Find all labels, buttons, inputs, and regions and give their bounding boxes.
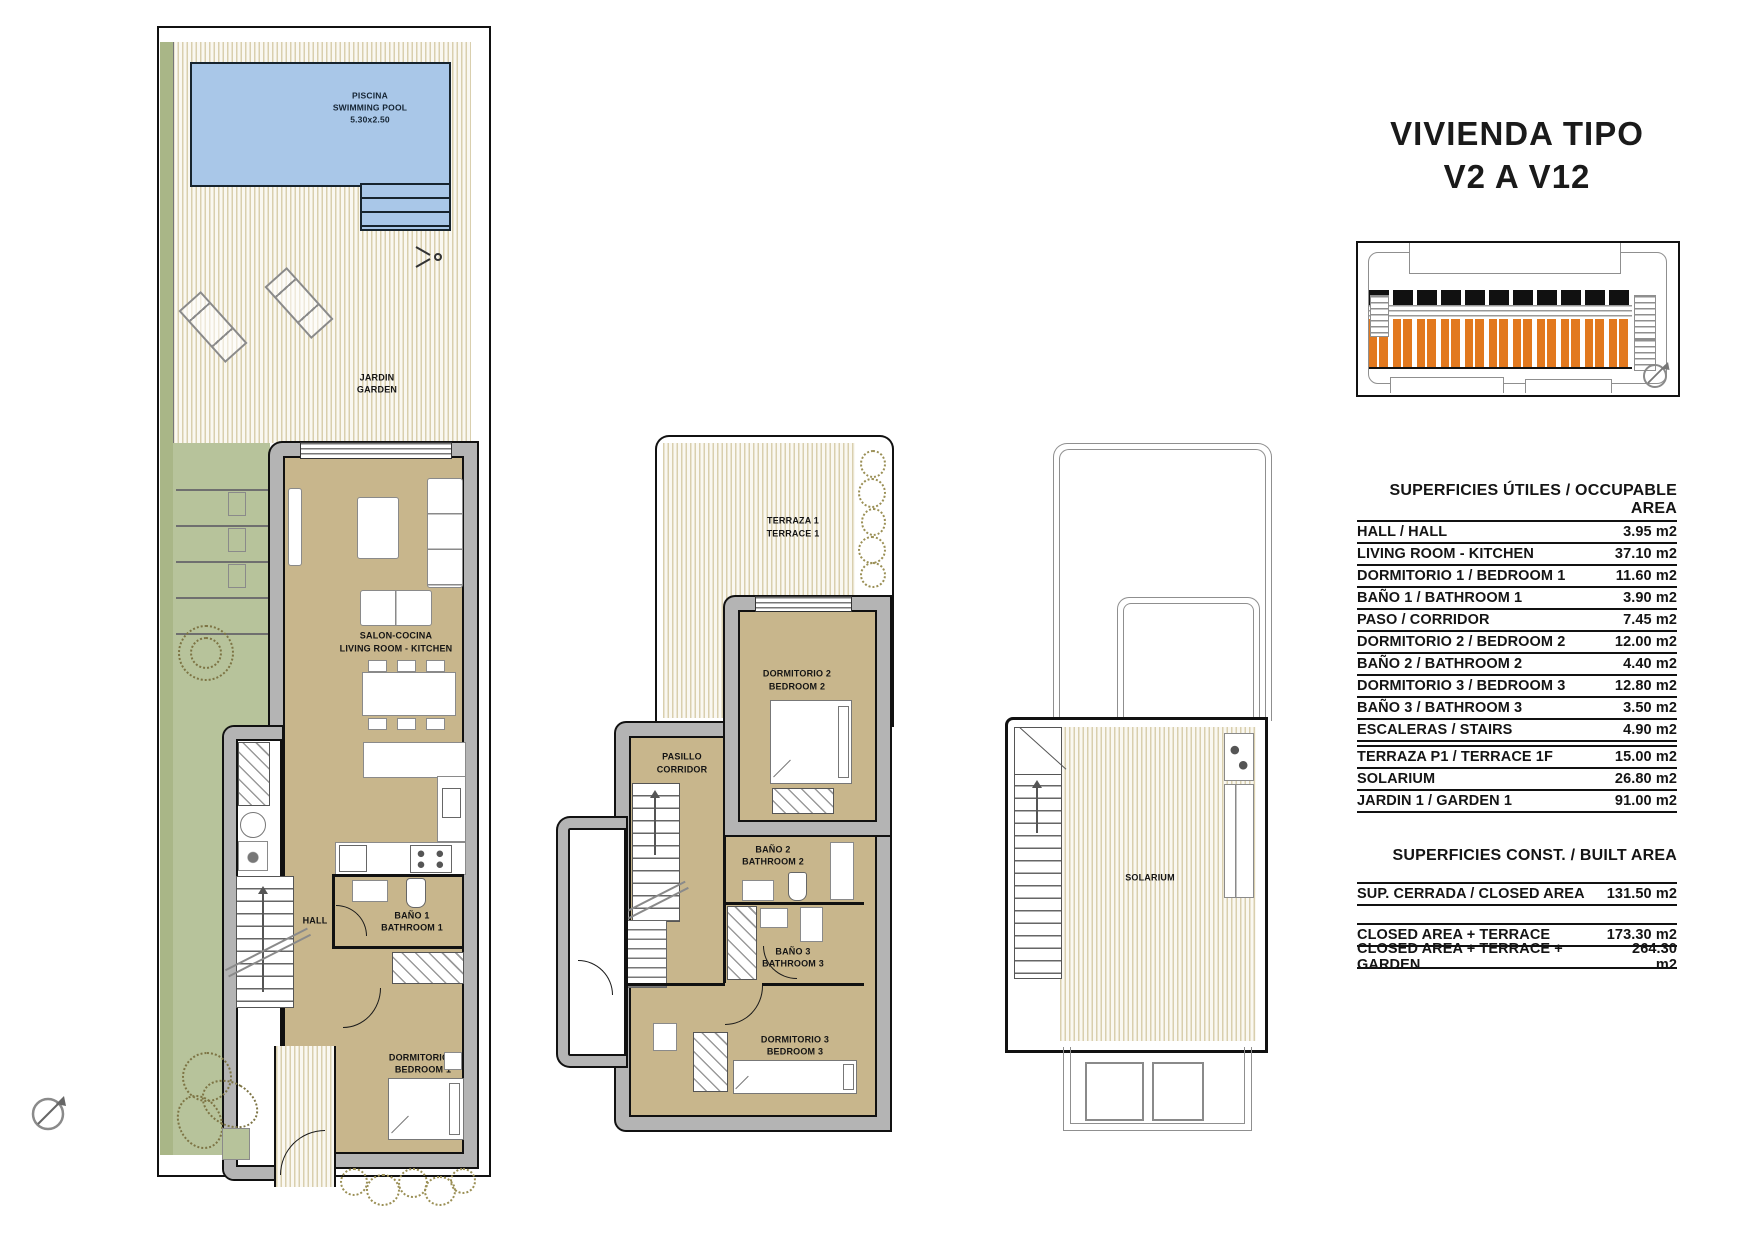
bed2-wardrobe [772,788,834,814]
occupable-area-table: HALL / HALL3.95 m2 LIVING ROOM - KITCHEN… [1357,520,1677,742]
bed2-label-1: DORMITORIO 2 [763,669,831,680]
built-area-table: SUP. CERRADA / CLOSED AREA131.50 m2 [1357,882,1677,906]
stove [410,845,452,873]
bath2-label-1: BAÑO 2 [755,845,790,856]
bed-3 [733,1060,857,1094]
pool-label-1: PISCINA [352,91,388,102]
bath2-label-2: BATHROOM 2 [742,857,804,868]
fridge [339,845,367,872]
shower-icon [412,243,446,275]
bath2-shower [830,842,854,900]
tv-unit [288,488,302,566]
pergola-post [228,492,246,516]
terrace-label-1: TERRAZA 1 [767,516,819,527]
bed3-label-2: BEDROOM 3 [767,1047,823,1058]
stairs-solarium [1014,773,1062,979]
roof-outline2-inner [1123,603,1254,721]
units-highlight-band [1369,319,1632,369]
wall-corridor-baths [723,835,726,983]
pergola-dashes [176,455,268,640]
pergola-post [228,528,246,552]
dining-chair [426,660,445,672]
title-line-2: V2 A V12 [1357,155,1677,198]
pool-label-3: 5.30x2.50 [350,115,390,126]
bed3-label-1: DORMITORIO 3 [761,1035,829,1046]
site-location-plan [1356,241,1680,397]
dining-chair [397,718,416,730]
table-row: SOLARIUM26.80 m2 [1357,769,1677,791]
compass-icon [1641,356,1673,390]
table-row: DORMITORIO 2 / BEDROOM 212.00 m2 [1357,632,1677,654]
shrub [366,1174,400,1206]
terrace-shrub [860,450,886,478]
hall-label: HALL [303,916,328,927]
units-terrace-band [1369,305,1632,319]
dining-chair [397,660,416,672]
bath3-tub [800,907,823,942]
wall-hall-bath [332,874,335,948]
table-row: BAÑO 3 / BATHROOM 33.50 m2 [1357,698,1677,720]
bath2-sink [742,880,774,901]
site-lower-court [1525,379,1612,393]
living-label-2: LIVING ROOM - KITCHEN [340,644,453,655]
dining-chair [426,718,445,730]
pool-steps [360,183,451,231]
units-wall-band [1369,290,1632,305]
bath2-toilet [788,872,807,901]
table-row: ESCALERAS / STAIRS4.90 m2 [1357,720,1677,742]
kitchen-sink [442,788,461,818]
floorplan-sheet: PISCINA SWIMMING POOL 5.30x2.50 JARDIN G… [0,0,1755,1241]
bath3-sink [760,908,788,928]
bath1-label-2: BATHROOM 1 [381,923,443,934]
garden-label-1: JARDIN [360,373,395,384]
dining-table [362,672,456,716]
solarium-counter [1224,784,1254,898]
wall-bed3-top-left [628,983,725,986]
table-row: BAÑO 2 / BATHROOM 24.40 m2 [1357,654,1677,676]
table-row: DORMITORIO 3 / BEDROOM 312.80 m2 [1357,676,1677,698]
table-row: LIVING ROOM - KITCHEN37.10 m2 [1357,544,1677,566]
stairs-arrow-head [258,886,268,894]
terrace-shrub [860,562,886,588]
solarium-sink-unit [1224,733,1254,781]
bed-3-pillow [843,1064,854,1090]
table-row: HALL / HALL3.95 m2 [1357,522,1677,544]
coffee-table [357,497,399,559]
terrace-shrub [861,508,886,536]
skylight [1085,1062,1144,1121]
rose-bush-inner [190,637,222,669]
stairs-arrow [654,795,656,855]
garden-chair [222,1128,250,1160]
laundry-sink [240,812,266,838]
garden-label-2: GARDEN [357,385,397,396]
table-row: BAÑO 1 / BATHROOM 13.90 m2 [1357,588,1677,610]
bath1-sink [352,880,388,902]
site-lower-court [1390,377,1504,393]
nightstand [444,1052,462,1070]
shrub [450,1168,476,1194]
site-end-block [1370,295,1389,337]
entry-step [653,1023,677,1051]
bedroom2-window [755,596,852,612]
shrub [340,1168,368,1196]
kitchen-counter [363,742,466,778]
site-boundary-notch [1409,243,1621,274]
wall-bed3-top-right [762,983,864,986]
stairs-arrow-head [650,790,660,798]
exterior-area-table: TERRAZA P1 / TERRACE 1F15.00 m2 SOLARIUM… [1357,745,1677,813]
north-arrow-icon [26,1088,74,1136]
occupable-area-header: SUPERFICIES ÚTILES / OCCUPABLE AREA [1357,482,1677,518]
wall-kitchen-bath [332,874,464,877]
bed-1-pillow [449,1083,460,1135]
living-window [300,442,452,459]
terrace-shrub [858,478,886,508]
wall-bath2-bottom [726,902,864,905]
sofa [427,478,463,588]
boundary-green-strip [160,42,174,1155]
table-row: PASO / CORRIDOR7.45 m2 [1357,610,1677,632]
corridor-label-2: CORRIDOR [657,765,708,776]
pool-label-2: SWIMMING POOL [333,103,407,114]
swimming-pool [190,62,451,187]
table-row: TERRAZA P1 / TERRACE 1F15.00 m2 [1357,747,1677,769]
table-row: CLOSED AREA + TERRACE + GARDEN264.30 m2 [1357,947,1677,969]
terrace-shrub [858,536,886,564]
stairs-solarium-top [1014,727,1062,775]
stairs-first-lower [619,920,667,988]
table-row: SUP. CERRADA / CLOSED AREA131.50 m2 [1357,884,1677,906]
bath1-toilet [406,878,426,908]
washing-machine [238,841,268,871]
title-line-1: VIVIENDA TIPO [1357,112,1677,155]
pergola-post [228,564,246,588]
wall-bath-bedroom [332,946,464,949]
bed-2-pillow [838,706,849,778]
page-title: VIVIENDA TIPO V2 A V12 [1357,112,1677,198]
corridor-label-1: PASILLO [662,752,702,763]
stairs-arrow [262,892,264,992]
bed1-wardrobe [392,952,464,984]
skylight [1152,1062,1204,1121]
totals-table: CLOSED AREA + TERRACE173.30 m2 CLOSED AR… [1357,923,1677,969]
laundry-closet [238,742,270,806]
bath3-closet [727,906,757,980]
solarium-label: SOLARIUM [1125,873,1175,884]
built-area-header: SUPERFICIES CONST. / BUILT AREA [1357,847,1677,865]
bath1-label-1: BAÑO 1 [394,911,429,922]
bed3-wardrobe [693,1032,728,1092]
terrace-label-2: TERRACE 1 [767,529,820,540]
dining-chair [368,718,387,730]
stairs-arrow-head [1032,780,1042,788]
living-label-1: SALON-COCINA [360,631,432,642]
dining-chair [368,660,387,672]
site-end-block [1634,295,1656,341]
siteplan-units [1369,290,1632,369]
bed1-label-2: BEDROOM 1 [395,1065,451,1076]
stairs-arrow [1036,785,1038,833]
table-row: DORMITORIO 1 / BEDROOM 111.60 m2 [1357,566,1677,588]
armchairs [360,590,432,626]
table-row: JARDIN 1 / GARDEN 191.00 m2 [1357,791,1677,813]
bed2-label-2: BEDROOM 2 [769,682,825,693]
entry-landing [558,818,626,1066]
